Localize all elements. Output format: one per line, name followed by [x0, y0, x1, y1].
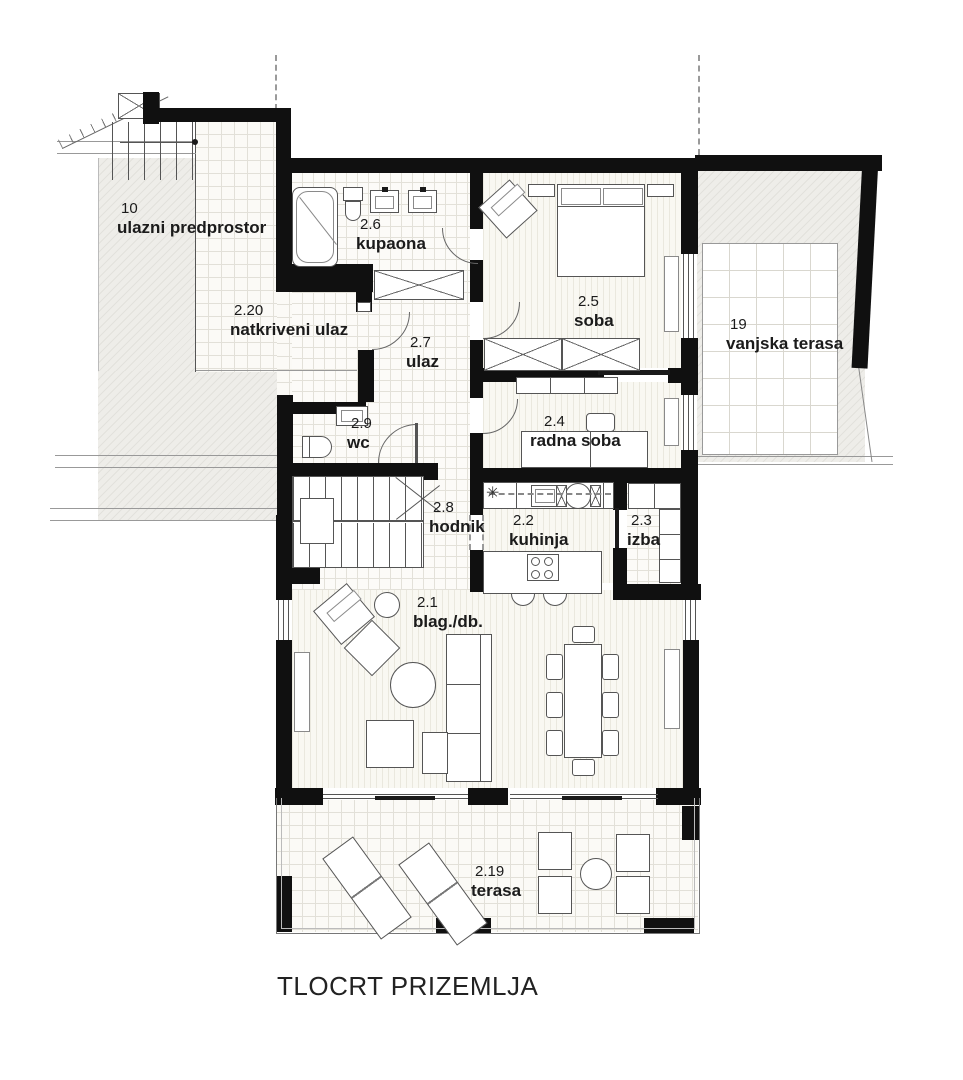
pantry-shelf [659, 509, 681, 583]
window [683, 395, 696, 450]
door-leaf [415, 423, 418, 463]
window [278, 600, 291, 640]
wall [470, 173, 483, 229]
room-name: izba [627, 530, 660, 549]
exterior-ground-hatch [98, 158, 196, 372]
radiator [664, 649, 680, 729]
wall [143, 108, 291, 122]
tap [382, 187, 388, 192]
room-number: 2.9 [347, 416, 372, 433]
burner [544, 570, 553, 579]
window [685, 600, 698, 640]
counter-centerline [489, 493, 611, 495]
pillow [561, 188, 601, 205]
entry-steps [112, 122, 197, 180]
wall [358, 350, 374, 402]
shelf-divider [584, 377, 585, 394]
stair-core [300, 498, 334, 544]
terrace-chair [616, 834, 650, 872]
window [683, 254, 696, 338]
sofa-back [480, 634, 481, 782]
sink-wing [590, 485, 601, 507]
sofa [446, 634, 492, 782]
dining-chair [602, 654, 619, 680]
door-leaf [357, 302, 371, 312]
shelf-divider [659, 559, 681, 560]
room-label-terasa: 2.19terasa [471, 864, 521, 900]
site-line [55, 455, 277, 456]
room-label-vanjska-terasa: 19vanjska terasa [726, 317, 843, 353]
site-line [55, 467, 277, 468]
room-number: 10 [117, 201, 266, 218]
room-name: radna soba [530, 431, 621, 450]
room-label-wc: 2.9wc [347, 416, 372, 452]
room-label-hodnik: 2.8hodnik [429, 500, 485, 536]
room-label-kuhinja: 2.2kuhinja [509, 513, 569, 549]
dining-chair [602, 730, 619, 756]
room-name: vanjska terasa [726, 334, 843, 353]
room-label-soba: 2.5soba [574, 294, 614, 330]
counter-divider [603, 482, 604, 509]
wardrobe [484, 338, 562, 371]
room-number: 2.20 [230, 303, 348, 320]
room-label-ulazni-predprostor: 10ulazni predprostor [117, 201, 266, 237]
room-name: terasa [471, 881, 521, 900]
dining-table [564, 644, 602, 758]
room-number: 2.19 [471, 864, 521, 881]
site-line [50, 508, 277, 509]
dining-chair [546, 692, 563, 718]
burner [531, 570, 540, 579]
wall [613, 548, 627, 586]
wall [613, 483, 627, 510]
room-name: ulaz [406, 352, 439, 371]
room-name: soba [574, 311, 614, 330]
wardrobe [374, 270, 464, 300]
room-number: 2.5 [574, 294, 614, 311]
wall [276, 158, 682, 173]
room-number: 2.4 [530, 414, 621, 431]
wall [276, 515, 292, 600]
side-table [374, 592, 400, 618]
floor-plan: 10ulazni predprostor 2.20natkriveni ulaz… [0, 0, 963, 1080]
wall [483, 468, 697, 483]
wall [683, 640, 699, 788]
room-number: 2.3 [627, 513, 660, 530]
wall [292, 568, 320, 584]
room-label-ulaz: 2.7ulaz [406, 335, 439, 371]
wall [470, 260, 483, 302]
shelf [516, 377, 618, 394]
room-label-radna-soba: 2.4radna soba [530, 414, 621, 450]
chaise [422, 732, 448, 774]
burner [544, 557, 553, 566]
wall [681, 158, 698, 254]
wall [276, 264, 373, 292]
sofa-divider [446, 733, 480, 734]
sliding-door [615, 508, 619, 548]
nightstand [647, 184, 674, 197]
wall [470, 550, 483, 592]
pillow [603, 188, 643, 205]
rug [390, 662, 436, 708]
room-number: 2.1 [413, 595, 483, 612]
burner [531, 557, 540, 566]
wall [695, 155, 882, 171]
kitchen-fixture-icon: ✳ [486, 483, 499, 503]
tap [420, 187, 426, 192]
wardrobe [562, 338, 640, 371]
dining-chair [602, 692, 619, 718]
room-number: 2.2 [509, 513, 569, 530]
dining-chair [546, 730, 563, 756]
reference-dot [192, 139, 198, 145]
sink-basin [375, 196, 394, 209]
terrace-chair [616, 876, 650, 914]
shelf-divider [550, 377, 551, 394]
room-name: kuhinja [509, 530, 569, 549]
toilet-tank [343, 187, 363, 201]
room-label-kupaona: 2.6kupaona [356, 217, 426, 253]
room-number: 19 [726, 317, 843, 334]
dining-chair [546, 654, 563, 680]
sink-basin [413, 196, 432, 209]
room-name: hodnik [429, 517, 485, 536]
step-line [120, 142, 194, 143]
dining-chair [572, 626, 595, 643]
bed-line [557, 206, 645, 207]
site-line [697, 456, 893, 457]
room-name: ulazni predprostor [117, 218, 266, 237]
nightstand [528, 184, 555, 197]
shelf-divider [659, 534, 681, 535]
section-line [275, 55, 277, 110]
wall [276, 640, 292, 790]
exterior-ground-hatch [98, 371, 277, 521]
room-name: kupaona [356, 234, 426, 253]
dining-chair [572, 759, 595, 776]
terrace-table [580, 858, 612, 890]
room-name: wc [347, 433, 372, 452]
terrace-chair [538, 832, 572, 870]
wall [681, 338, 698, 395]
room-label-natkriveni-ulaz: 2.20natkriveni ulaz [230, 303, 348, 339]
room-number: 2.8 [429, 500, 485, 517]
wall [681, 450, 698, 600]
radiator [294, 652, 310, 732]
terrace-chair [538, 876, 572, 914]
site-line [697, 464, 893, 465]
room-number: 2.6 [356, 217, 426, 234]
section-line [698, 55, 700, 155]
boundary-line [196, 370, 357, 371]
radiator [664, 398, 679, 446]
site-line [50, 520, 277, 521]
ottoman [366, 720, 414, 768]
radiator [664, 256, 679, 332]
wc-toilet-tank [309, 436, 310, 458]
wc-toilet [302, 436, 332, 458]
oven-inner [535, 489, 555, 503]
shelf-divider [654, 483, 655, 509]
room-number: 2.7 [406, 335, 439, 352]
drawing-title: TLOCRT PRIZEMLJA [277, 971, 538, 1002]
room-label-izba: 2.3izba [627, 513, 660, 549]
room-name: blag./db. [413, 612, 483, 631]
counter-divider [516, 482, 517, 509]
room-label-blag-db: 2.1blag./db. [413, 595, 483, 631]
sink-wing [556, 485, 567, 507]
sofa-divider [446, 684, 480, 685]
room-name: natkriveni ulaz [230, 320, 348, 339]
kitchen-sink [565, 483, 591, 509]
